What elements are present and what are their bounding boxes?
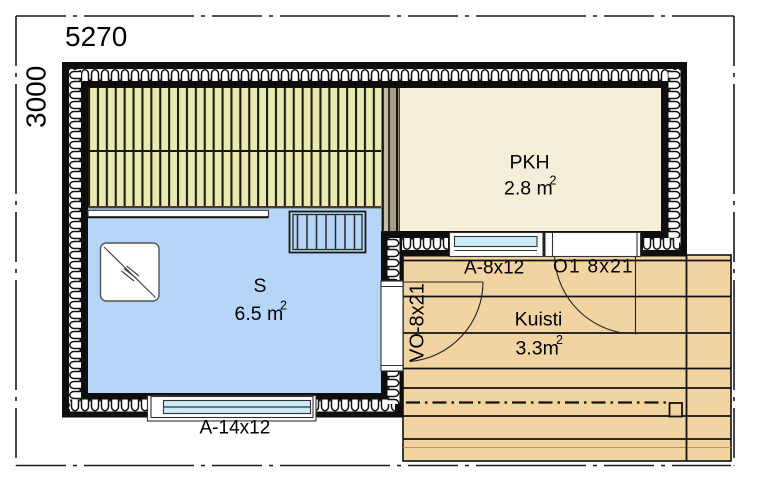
svg-text:A-8x12: A-8x12 <box>464 258 524 279</box>
svg-text:2.8 m: 2.8 m <box>504 178 553 200</box>
svg-text:6.5 m: 6.5 m <box>235 303 284 325</box>
svg-text:O1 8x21: O1 8x21 <box>553 257 634 278</box>
svg-text:2: 2 <box>550 174 557 188</box>
svg-text:PKH: PKH <box>509 152 549 174</box>
svg-text:A-14x12: A-14x12 <box>200 418 271 439</box>
svg-text:5270: 5270 <box>65 21 127 52</box>
svg-text:2: 2 <box>280 299 287 313</box>
svg-text:Kuisti: Kuisti <box>515 308 563 330</box>
svg-text:VO-8x21: VO-8x21 <box>407 283 429 362</box>
svg-text:3.3m: 3.3m <box>516 338 559 360</box>
svg-text:2: 2 <box>556 333 563 347</box>
svg-text:3000: 3000 <box>21 66 52 128</box>
svg-text:S: S <box>253 275 266 297</box>
